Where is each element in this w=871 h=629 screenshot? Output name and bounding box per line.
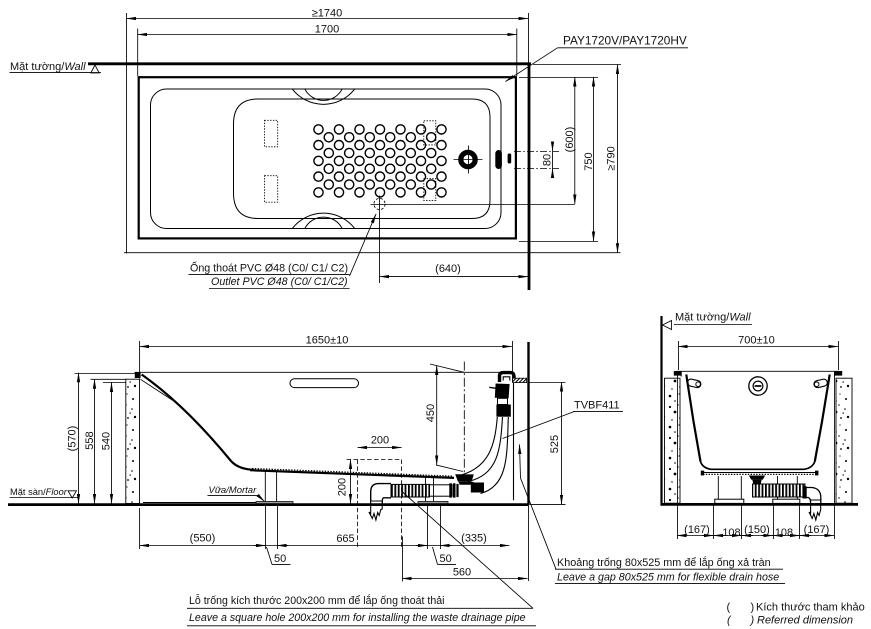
svg-text:): ) (751, 601, 755, 613)
svg-text:80: 80 (542, 154, 554, 166)
svg-text:Mặt tường/Wall: Mặt tường/Wall (675, 312, 751, 324)
svg-text:(550): (550) (190, 533, 216, 545)
svg-text:Leave a square hole 200x200 m: Leave a square hole 200x200 mm for insta… (189, 612, 526, 624)
svg-text:Leave a gap 80x525 mm for flex: Leave a gap 80x525 mm for flexible drain… (557, 571, 779, 583)
svg-text:Vữa/Mortar: Vữa/Mortar (209, 485, 258, 496)
svg-text:(: ( (727, 615, 732, 627)
svg-text:Mặt sàn/Floor: Mặt sàn/Floor (10, 487, 68, 497)
svg-text:(: ( (727, 601, 731, 613)
svg-text:558: 558 (84, 431, 96, 449)
svg-text:450: 450 (425, 404, 437, 422)
svg-text:≥790: ≥790 (606, 146, 618, 170)
svg-text:Khoảng trống 80x525 mm để lắp: Khoảng trống 80x525 mm để lắp ống xả trà… (557, 556, 771, 569)
svg-text:(150): (150) (744, 524, 770, 536)
svg-text:PAY1720V/PAY1720HV: PAY1720V/PAY1720HV (563, 34, 687, 48)
svg-text:(640): (640) (435, 263, 461, 275)
svg-text:TVBF411: TVBF411 (574, 400, 620, 412)
svg-text:(600): (600) (564, 127, 576, 153)
svg-text:200: 200 (337, 478, 349, 496)
svg-text:50: 50 (274, 553, 286, 565)
svg-text:108: 108 (775, 527, 793, 539)
svg-text:Ống thoát PVC Ø48 (C0/ C1/ C2): Ống thoát PVC Ø48 (C0/ C1/ C2) (190, 261, 348, 275)
svg-text:560: 560 (453, 566, 471, 578)
svg-text:108: 108 (722, 527, 740, 539)
svg-text:1650±10: 1650±10 (306, 335, 349, 347)
svg-text:750: 750 (583, 152, 595, 170)
svg-text:540: 540 (101, 432, 113, 450)
svg-text:525: 525 (549, 435, 561, 453)
svg-text:(167): (167) (804, 524, 830, 536)
svg-text:): ) (749, 615, 755, 627)
svg-text:Kích thước tham khảo: Kích thước tham khảo (756, 601, 865, 613)
svg-text:Referred dimension: Referred dimension (757, 615, 853, 627)
svg-text:1700: 1700 (315, 23, 339, 35)
svg-text:665: 665 (336, 533, 354, 545)
svg-text:(167): (167) (684, 524, 710, 536)
svg-text:(570): (570) (67, 426, 79, 452)
svg-text:≥1740: ≥1740 (312, 8, 343, 20)
svg-text:Outlet PVC Ø48 (C0/ C1/C2): Outlet PVC Ø48 (C0/ C1/C2) (211, 276, 348, 288)
svg-text:200: 200 (371, 434, 389, 446)
svg-text:50: 50 (440, 553, 452, 565)
svg-text:(335): (335) (461, 533, 487, 545)
svg-text:700±10: 700±10 (738, 334, 775, 346)
svg-text:Lỗ trống kích thước 200x200 mm: Lỗ trống kích thước 200x200 mm để lắp ốn… (189, 594, 445, 607)
svg-text:Mặt tường/Wall: Mặt tường/Wall (10, 61, 86, 73)
